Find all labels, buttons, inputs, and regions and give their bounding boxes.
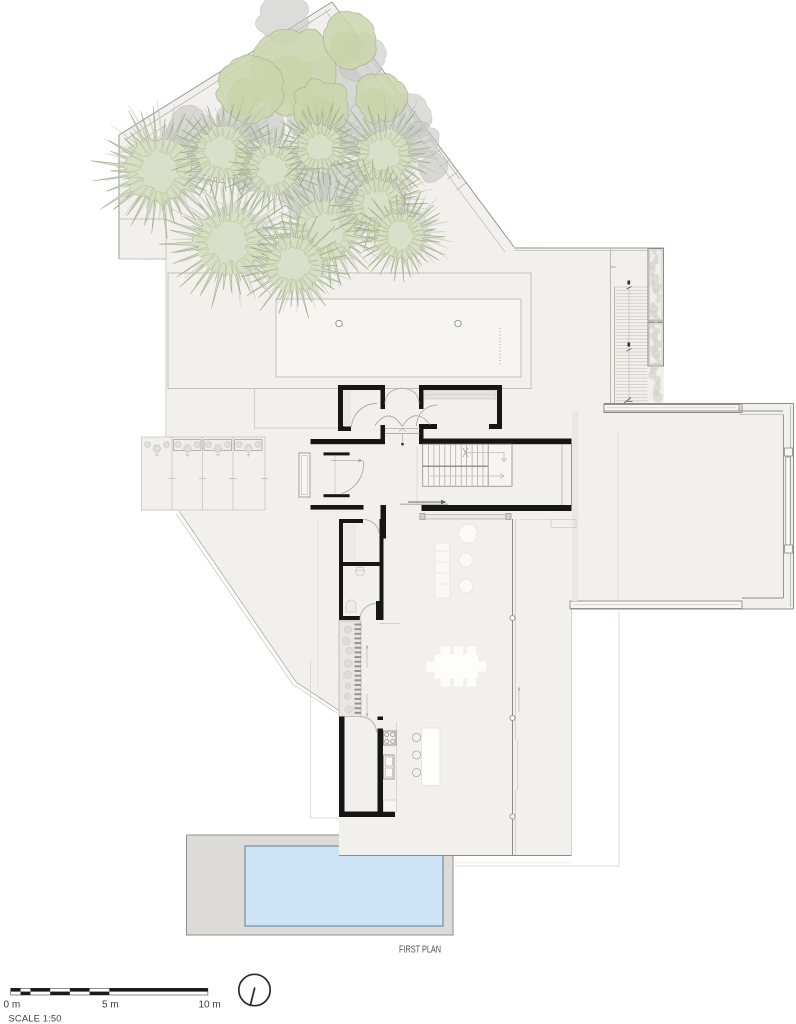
svg-text:FIRST PLAN: FIRST PLAN [399,944,441,955]
svg-text:0 m: 0 m [4,1000,21,1011]
svg-text:5 m: 5 m [102,1000,119,1011]
svg-text:SCALE 1:50: SCALE 1:50 [9,1014,62,1024]
svg-text:10 m: 10 m [199,1000,221,1011]
